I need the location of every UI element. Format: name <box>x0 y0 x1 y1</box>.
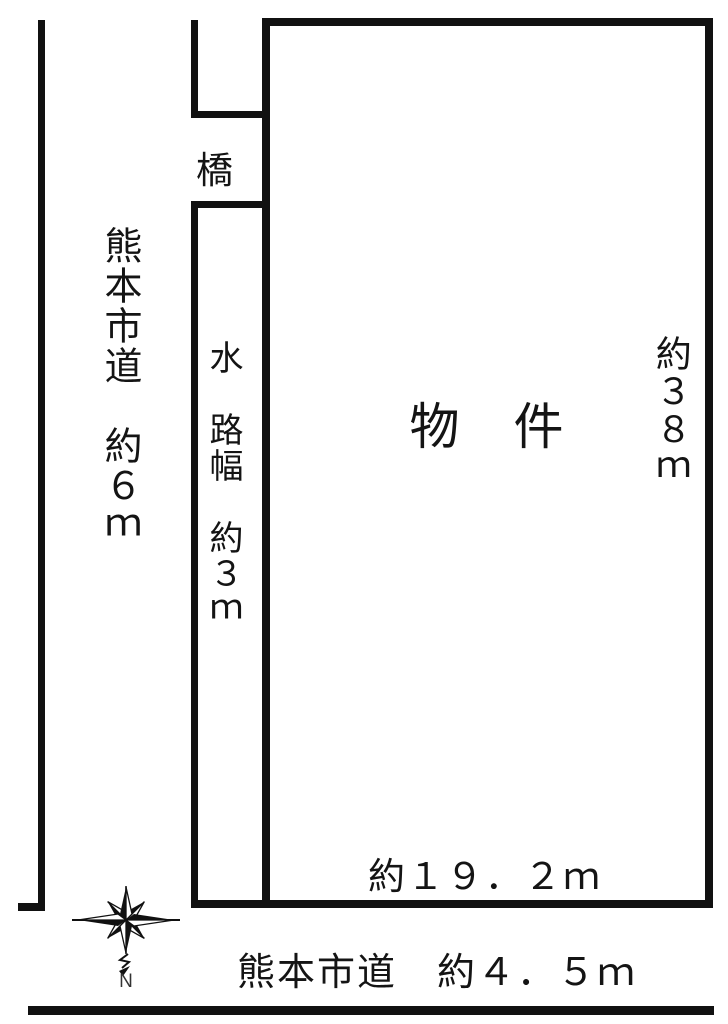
bridge-upper-edge-line <box>191 111 270 118</box>
waterway-left-line-lower <box>191 201 198 908</box>
waterway-left-line-upper <box>191 20 198 118</box>
property-parcel-outline <box>262 18 713 908</box>
bottom-road-line <box>28 1006 714 1015</box>
property-label: 物 件 <box>262 387 713 459</box>
land-plot-diagram: 熊本市道 約６ｍ 橋 水 路幅 約３ｍ 物 件 約３８ｍ 約１９．２ｍ 熊本市道… <box>0 0 728 1024</box>
waterway-width-label: 水 路幅 約３ｍ <box>206 340 240 628</box>
bottom-frontage-dimension-label: 約１９．２ｍ <box>368 846 602 900</box>
right-depth-dimension-label: 約３８ｍ <box>652 335 690 487</box>
compass-cardinal-points <box>78 887 174 953</box>
bridge-label: 橋 <box>196 140 233 194</box>
compass-rose-icon: N <box>70 882 182 990</box>
left-road-boundary-line <box>38 20 45 909</box>
compass-north-label: N <box>119 971 133 990</box>
left-road-label: 熊本市道 約６ｍ <box>100 226 138 546</box>
left-road-boundary-foot <box>18 903 45 911</box>
waterway-bottom-line <box>191 900 270 908</box>
bridge-lower-edge-line <box>191 201 270 208</box>
bottom-road-label: 熊本市道 約４．５ｍ <box>237 941 637 996</box>
